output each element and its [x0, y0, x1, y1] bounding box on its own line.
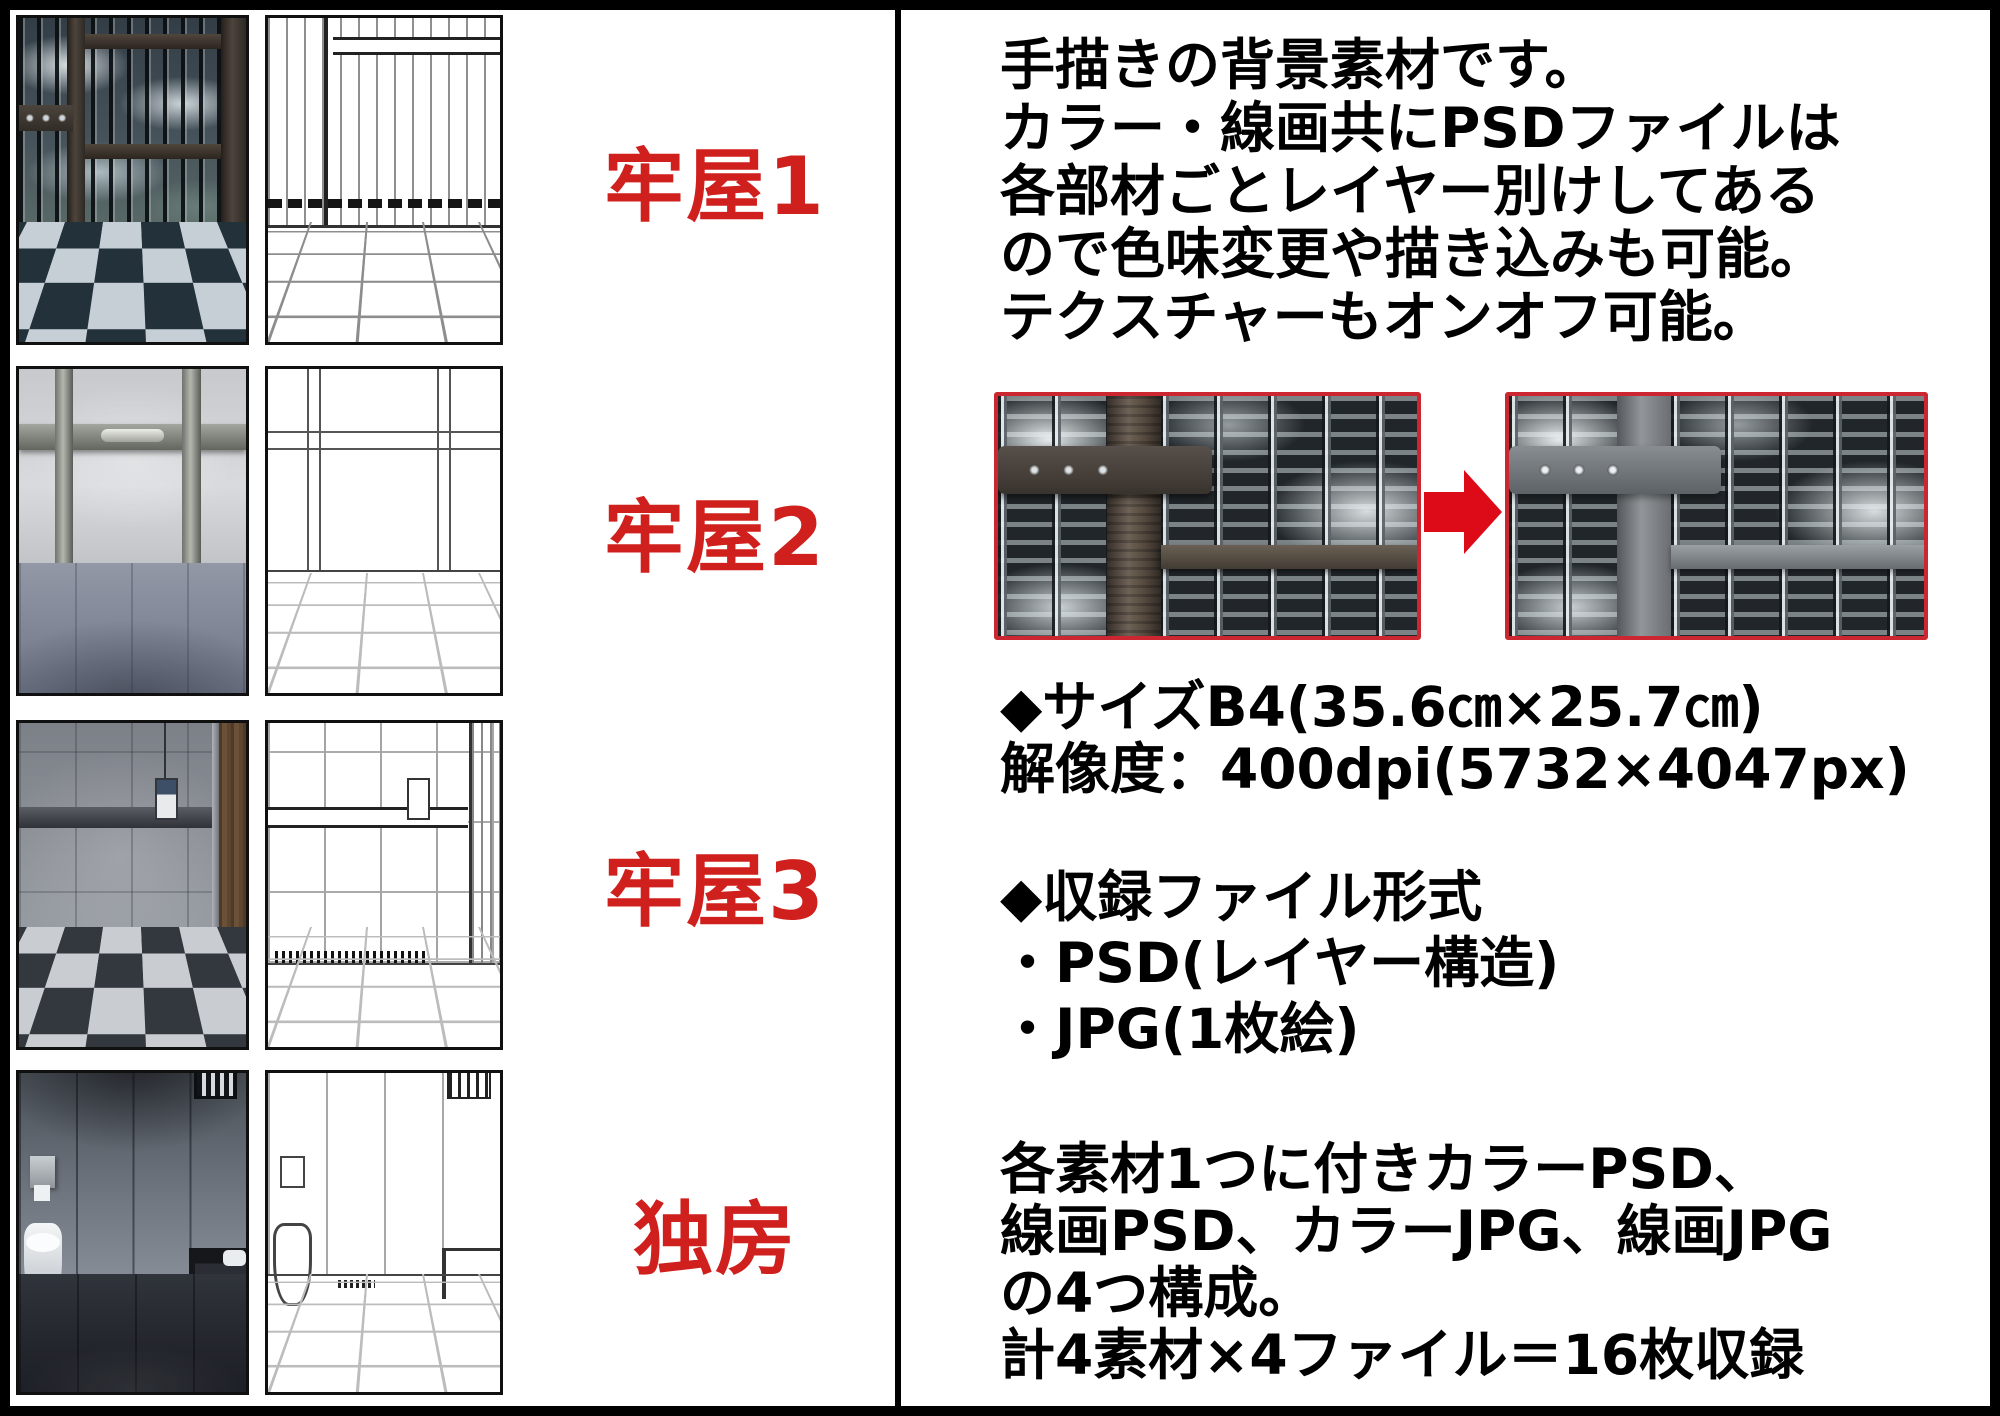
- lineart-vertical-beam: [437, 369, 451, 570]
- metal-panel-wall: [19, 369, 246, 563]
- thumbnail-jail-room-1-color: [16, 15, 249, 345]
- thumbnail-jail-room-2-color: [16, 366, 249, 696]
- beam-handle: [101, 429, 165, 442]
- checkered-floor: [16, 222, 249, 345]
- composition-line: の4つ構成。: [1000, 1262, 1832, 1324]
- dark-floor: [19, 1274, 246, 1392]
- row-label-jail-room-1: 牢屋1: [540, 15, 890, 345]
- paper-dispenser: [30, 1156, 55, 1188]
- paper-towel: [34, 1185, 50, 1201]
- thumbnail-solitary-cell-lineart: [265, 1070, 503, 1395]
- lineart-horizontal-beam: [268, 431, 500, 450]
- intercom-box: [155, 778, 178, 820]
- composition-info: 各素材1つに付きカラーPSD、 線画PSD、カラーJPG、線画JPG の4つ構成…: [1000, 1138, 1832, 1386]
- lineart-floor-grid: [265, 927, 503, 1050]
- intro-line: カラー・線画共にPSDファイルは: [1000, 97, 1841, 160]
- lineart-barred-window: [447, 1073, 491, 1099]
- format-psd-line: ・PSD(レイヤー構造): [1000, 930, 1559, 996]
- lineart-crossbar: [268, 199, 500, 208]
- row-label-solitary-cell: 独房: [540, 1070, 890, 1395]
- lineart-horizontal-beam: [268, 807, 468, 828]
- size-line: ◆サイズB4(35.6㎝×25.7㎝): [1000, 676, 1910, 738]
- format-jpg-line: ・JPG(1枚絵): [1000, 996, 1559, 1062]
- thumbnail-jail-room-3-lineart: [265, 720, 503, 1050]
- horizontal-rail: [1161, 545, 1417, 569]
- intro-line: 手描きの背景素材です。: [1000, 34, 1841, 97]
- texture-off-sample-image: [1505, 392, 1928, 640]
- tiled-floor: [19, 563, 246, 693]
- lineart-floor-grid: [265, 222, 503, 345]
- intro-line: ので色味変更や描き込みも可能。: [1000, 223, 1841, 286]
- thumbnail-jail-room-2-lineart: [265, 366, 503, 696]
- clean-post: [1617, 396, 1671, 636]
- lineart-intercom-box: [407, 778, 430, 820]
- size-info: ◆サイズB4(35.6㎝×25.7㎝) 解像度：400dpi(5732×4047…: [1000, 676, 1910, 800]
- vertical-beam: [182, 369, 200, 563]
- lineart-floor-edge: [268, 570, 500, 572]
- barred-window: [194, 1073, 237, 1099]
- composition-line: 計4素材×4ファイル＝16枚収録: [1000, 1324, 1832, 1386]
- intro-line: テクスチャーもオンオフ可能。: [1000, 286, 1841, 349]
- thumbnail-solitary-cell-color: [16, 1070, 249, 1395]
- thumbnail-jail-room-1-lineart: [265, 15, 503, 345]
- lineart-door-frame: [324, 18, 328, 225]
- bolted-plate: [998, 446, 1212, 494]
- intro-paragraph: 手描きの背景素材です。 カラー・線画共にPSDファイルは 各部材ごとレイヤー別け…: [1000, 34, 1841, 349]
- lineart-floor-grid: [265, 573, 503, 696]
- bolted-plate: [1509, 446, 1721, 494]
- horizontal-beam: [19, 807, 214, 828]
- rusty-post: [1107, 396, 1161, 636]
- composition-line: 線画PSD、カラーJPG、線画JPG: [1000, 1200, 1832, 1262]
- composition-line: 各素材1つに付きカラーPSD、: [1000, 1138, 1832, 1200]
- intro-line: 各部材ごとレイヤー別けしてある: [1000, 160, 1841, 223]
- resolution-line: 解像度：400dpi(5732×4047px): [1000, 738, 1910, 800]
- lineart-floor-grid: [265, 1274, 503, 1395]
- arrow-right-icon: [1424, 464, 1502, 560]
- row-label-jail-room-3: 牢屋3: [540, 720, 890, 1050]
- texture-on-sample-image: [994, 392, 1421, 640]
- steel-bars: [1509, 396, 1924, 636]
- vertical-divider: [895, 0, 901, 1416]
- bolted-plate: [19, 105, 73, 131]
- bed-pillow: [223, 1250, 246, 1266]
- format-heading: ◆収録ファイル形式: [1000, 864, 1559, 930]
- horizontal-rail: [1671, 545, 1924, 569]
- product-info-sheet: 牢屋1 牢屋2: [0, 0, 2000, 1416]
- checkered-floor: [16, 927, 249, 1050]
- toilet-seat: [26, 1233, 60, 1252]
- vertical-beam: [55, 369, 73, 563]
- lineart-crossbar: [333, 37, 500, 55]
- row-label-jail-room-2: 牢屋2: [540, 366, 890, 696]
- lineart-paper-dispenser: [280, 1156, 306, 1188]
- lineart-vertical-beam: [307, 369, 321, 570]
- thumbnail-jail-room-3-color: [16, 720, 249, 1050]
- file-format-info: ◆収録ファイル形式 ・PSD(レイヤー構造) ・JPG(1枚絵): [1000, 864, 1559, 1062]
- hanging-cord: [164, 723, 166, 778]
- door-post: [221, 18, 246, 232]
- steel-bars: [998, 396, 1417, 636]
